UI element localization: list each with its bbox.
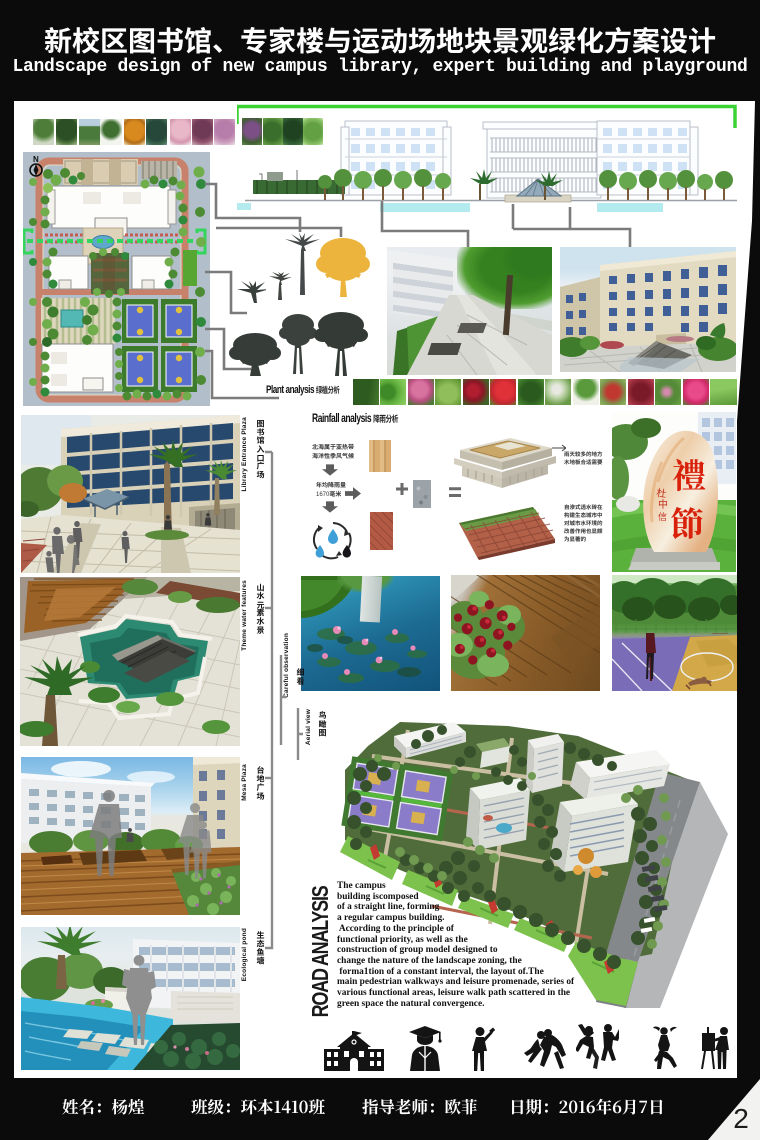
svg-text:信: 信 xyxy=(658,510,667,523)
svg-text:節: 節 xyxy=(670,497,704,546)
svg-text:禮: 禮 xyxy=(672,449,706,498)
svg-text:N: N xyxy=(33,155,39,164)
svg-text:中: 中 xyxy=(658,496,668,511)
